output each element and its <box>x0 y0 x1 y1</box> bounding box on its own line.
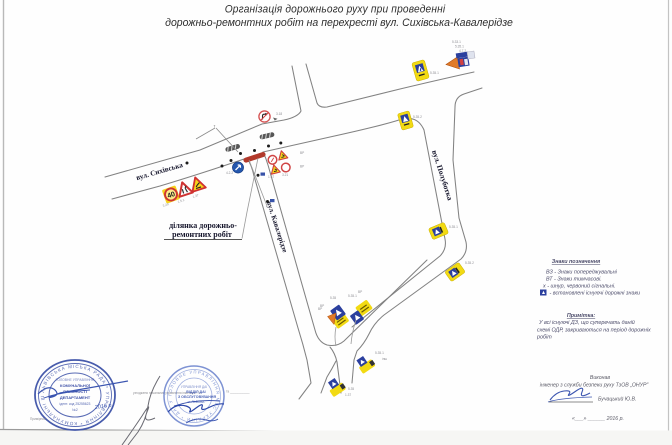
svg-text:У всі існуючі ДЗ, що суперечат: У всі існуючі ДЗ, що суперечать даній <box>538 319 635 326</box>
svg-text:5.35.1: 5.35.1 <box>430 71 439 75</box>
svg-text:Примітка:: Примітка: <box>567 313 596 319</box>
svg-text:5.35.1: 5.35.1 <box>348 294 357 298</box>
svg-text:5.35.2: 5.35.2 <box>413 115 422 119</box>
svg-text:1.37: 1.37 <box>268 175 274 179</box>
svg-text:4.7.2: 4.7.2 <box>459 49 466 53</box>
svg-text:ВР: ВР <box>300 151 304 155</box>
svg-text:5.35: 5.35 <box>330 296 336 300</box>
svg-text:ВР: ВР <box>318 307 322 311</box>
svg-text:ідент. код 25255623: ідент. код 25255623 <box>60 402 91 406</box>
svg-text:схемі ОДР, закриваються на пер: схемі ОДР, закриваються на період дорожн… <box>537 328 651 334</box>
svg-text:№2: №2 <box>72 408 78 412</box>
svg-text:ВЗ - Знаки попереджувальні: ВЗ - Знаки попереджувальні <box>546 270 618 276</box>
svg-text:інш: інш <box>382 357 387 361</box>
svg-text:1.37: 1.37 <box>345 393 351 397</box>
svg-text:З ОБСЛУГОВУВАННЯ: З ОБСЛУГОВУВАННЯ <box>178 395 217 399</box>
svg-text:робіт: робіт <box>536 335 552 341</box>
svg-text:т: т <box>214 124 216 129</box>
svg-text:5.35.1: 5.35.1 <box>449 225 458 229</box>
svg-text:дорожньо-ремонтних робіт на пе: дорожньо-ремонтних робіт на перехресті в… <box>165 17 513 29</box>
svg-text:5.35: 5.35 <box>348 387 354 391</box>
svg-text:- встановлені існуючі дорожні: - встановлені існуючі дорожні знаки <box>550 291 641 297</box>
svg-text:Знаки позначення: Знаки позначення <box>552 259 601 265</box>
svg-text:ремонтних робіт: ремонтних робіт <box>172 230 232 239</box>
svg-text:3.18: 3.18 <box>276 112 282 116</box>
svg-text:УПРАВЛІННЯ ДАІ: УПРАВЛІННЯ ДАІ <box>181 385 207 389</box>
svg-text:Бучацький Ю.В.: Бучацький Ю.В. <box>598 396 636 403</box>
svg-text:ВР: ВР <box>300 165 304 169</box>
svg-text:ГОЛОВНЕ УПРАВЛІННЯ: ГОЛОВНЕ УПРАВЛІННЯ <box>56 378 95 382</box>
svg-text:х - шнур, червоний сігнальні.: х - шнур, червоний сігнальні. <box>542 283 616 290</box>
svg-text:ВР: ВР <box>358 290 362 294</box>
svg-text:КОМУНАЛЬНОЇ: КОМУНАЛЬНОЇ <box>60 383 91 388</box>
svg-text:Організація дорожнього руху пр: Організація дорожнього руху при проведен… <box>225 3 446 16</box>
svg-text:ділянка дорожньо-: ділянка дорожньо- <box>169 221 237 230</box>
svg-text:та ___________: та ___________ <box>226 390 250 394</box>
svg-text:3.21: 3.21 <box>282 173 288 177</box>
svg-text:5.33.1: 5.33.1 <box>452 40 461 44</box>
svg-text:5.35.1: 5.35.1 <box>375 351 384 355</box>
svg-text:Виконав: Виконав <box>590 375 610 381</box>
svg-text:інженер з служби безпеки руху: інженер з служби безпеки руху ТзОВ „ОНУР… <box>540 383 650 389</box>
svg-text:«___» ______ 2016 р.: «___» ______ 2016 р. <box>572 416 624 422</box>
svg-text:ВІДДІЛ ДАІ: ВІДДІЛ ДАІ <box>186 390 205 394</box>
svg-text:ДЕПАРТАМЕНТ: ДЕПАРТАМЕНТ <box>60 395 91 400</box>
svg-text:5.35.2: 5.35.2 <box>465 261 474 265</box>
svg-text:4.2.2: 4.2.2 <box>226 171 233 175</box>
svg-text:Примірник: Примірник <box>30 417 46 421</box>
svg-text:5.35.1: 5.35.1 <box>455 45 464 49</box>
svg-text:ВТ - Знаки тимчасові.: ВТ - Знаки тимчасові. <box>546 277 602 283</box>
